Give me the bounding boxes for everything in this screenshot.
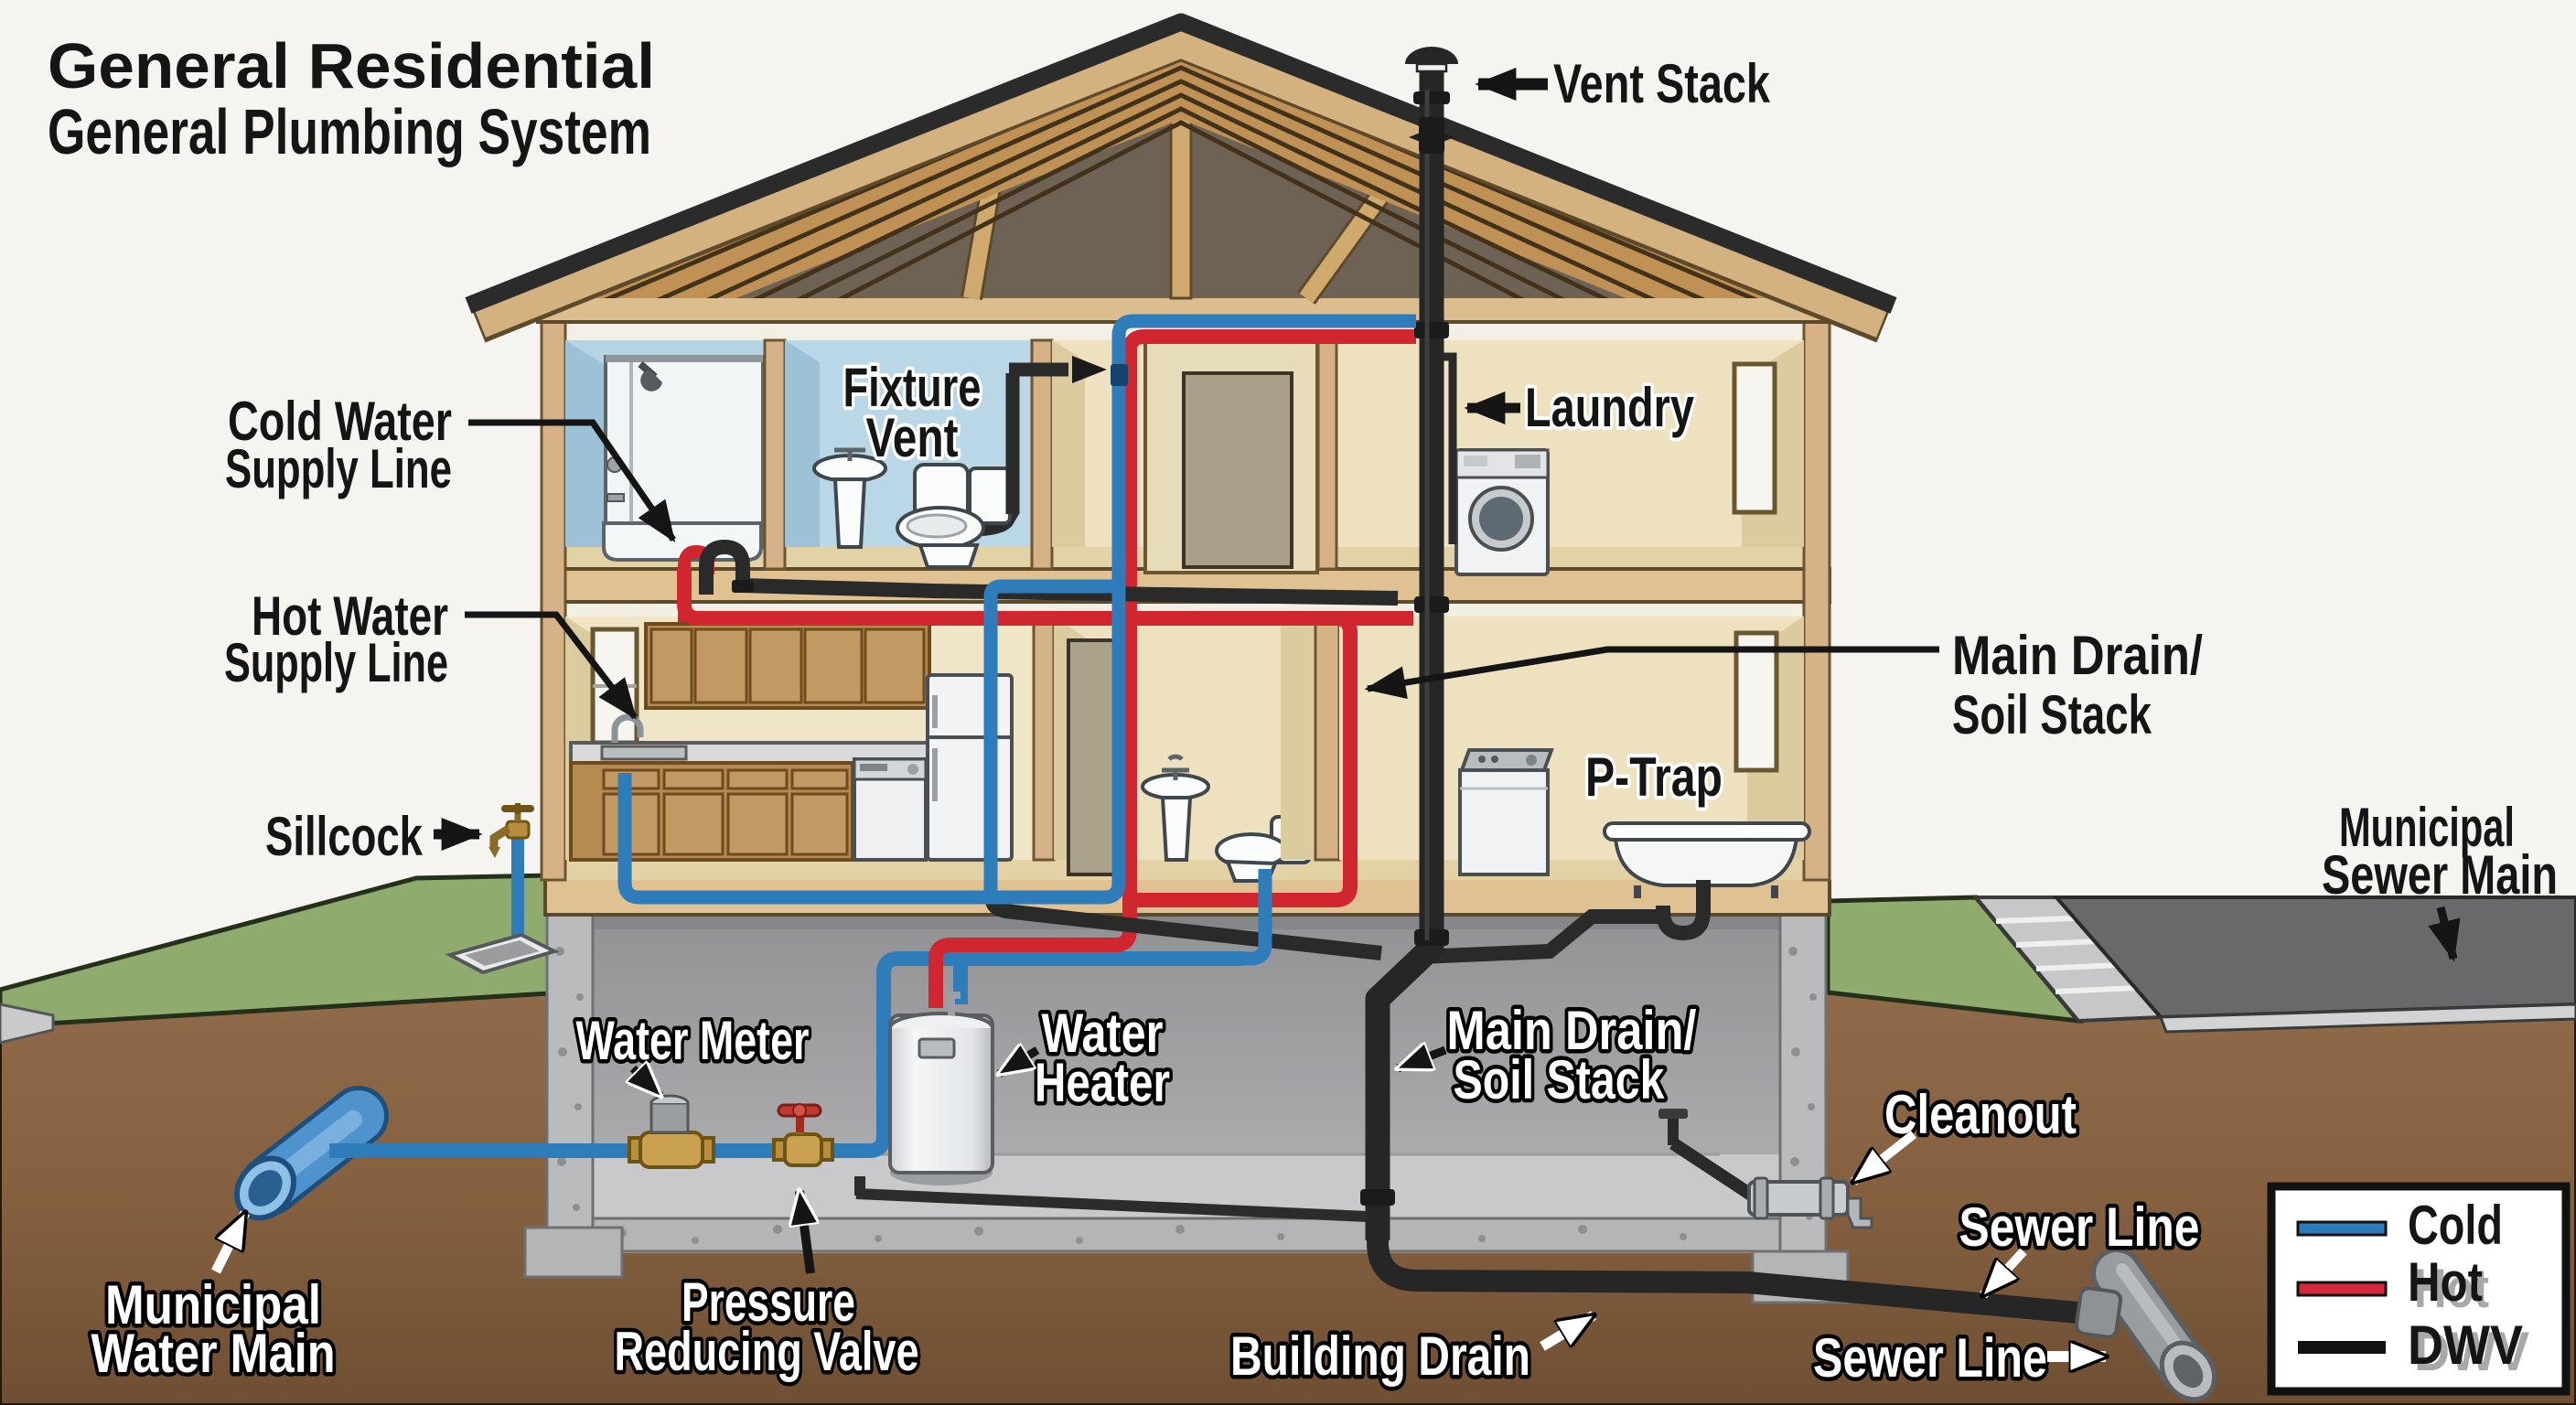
svg-text:Heater: Heater <box>1035 1052 1170 1113</box>
svg-text:Water Main: Water Main <box>91 1323 336 1384</box>
svg-text:Supply Line: Supply Line <box>224 632 448 693</box>
svg-text:Main Drain/: Main Drain/ <box>1952 625 2203 686</box>
svg-text:General Plumbing System: General Plumbing System <box>48 96 651 167</box>
svg-text:Sewer Line: Sewer Line <box>1813 1327 2047 1389</box>
svg-text:Sewer Main: Sewer Main <box>2322 844 2558 906</box>
svg-text:General Residential: General Residential <box>48 30 655 102</box>
svg-text:Soil Stack: Soil Stack <box>1952 684 2152 745</box>
svg-text:Vent: Vent <box>866 407 959 468</box>
svg-text:Cold: Cold <box>2408 1195 2503 1256</box>
svg-text:Sewer Line: Sewer Line <box>1959 1196 2200 1258</box>
svg-text:Sillcock: Sillcock <box>265 806 423 867</box>
svg-text:DWV: DWV <box>2408 1314 2523 1376</box>
svg-text:Soil Stack: Soil Stack <box>1454 1049 1666 1110</box>
svg-text:Laundry: Laundry <box>1525 377 1694 438</box>
svg-text:Hot: Hot <box>2408 1251 2483 1313</box>
svg-text:Building Drain: Building Drain <box>1230 1325 1530 1387</box>
svg-text:P-Trap: P-Trap <box>1585 746 1723 808</box>
svg-text:Supply Line: Supply Line <box>225 438 452 499</box>
svg-text:Reducing Valve: Reducing Valve <box>615 1321 919 1382</box>
svg-text:Water Meter: Water Meter <box>576 1010 810 1071</box>
svg-text:Vent Stack: Vent Stack <box>1553 53 1770 114</box>
